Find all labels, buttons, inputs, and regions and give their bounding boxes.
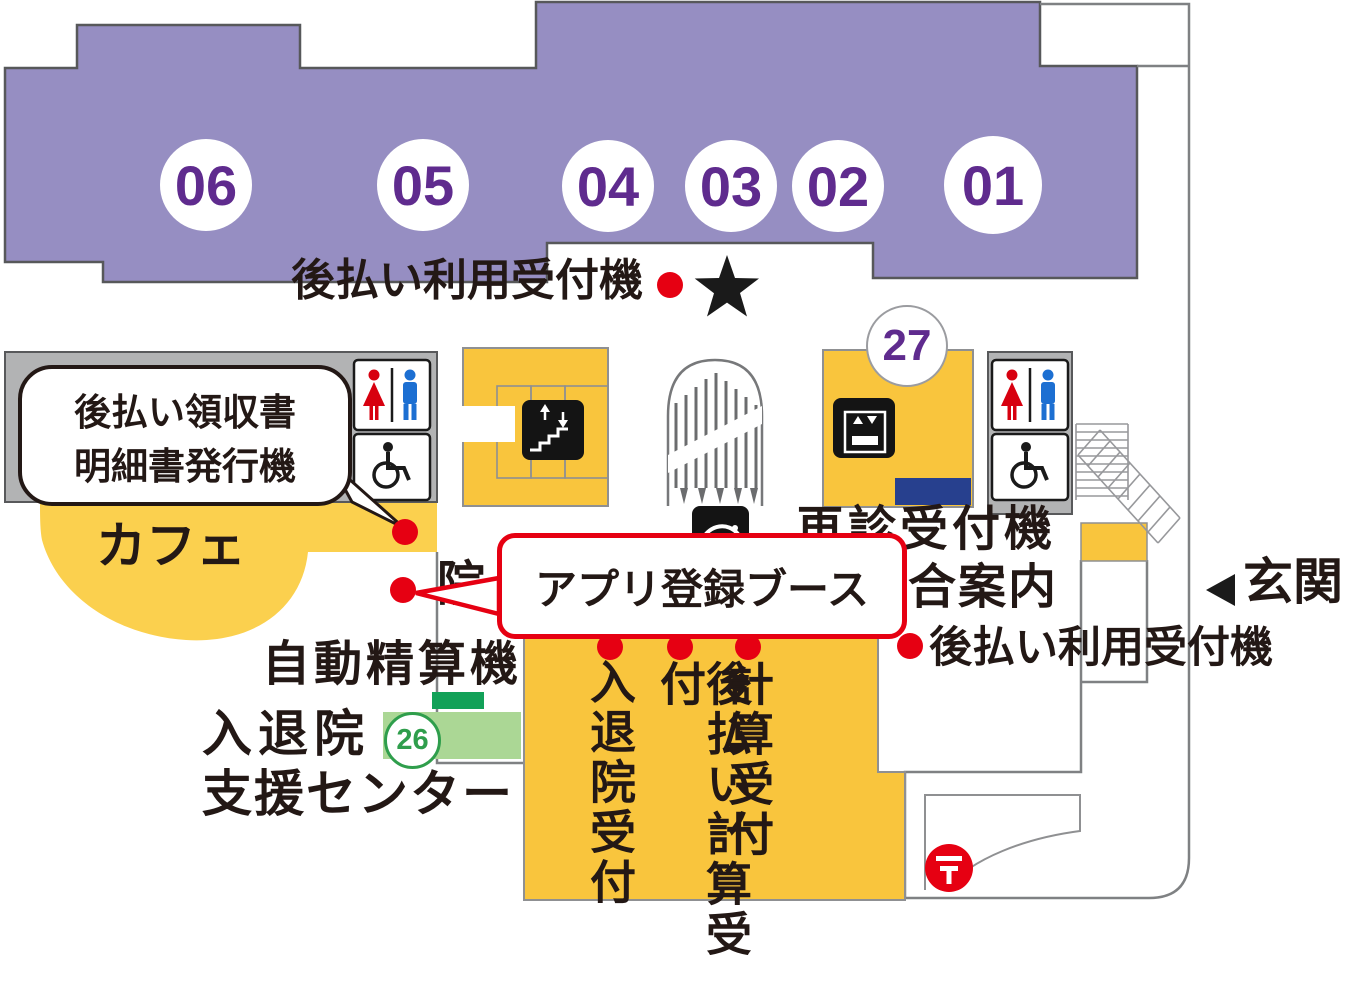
- location-dot: [392, 519, 418, 545]
- floor-map: 06 05 04 03 02 01 27 26 後払い利用受付機 カフェ 院 再…: [0, 0, 1350, 991]
- pointer-dots: [0, 0, 1350, 991]
- location-dot: [390, 577, 416, 603]
